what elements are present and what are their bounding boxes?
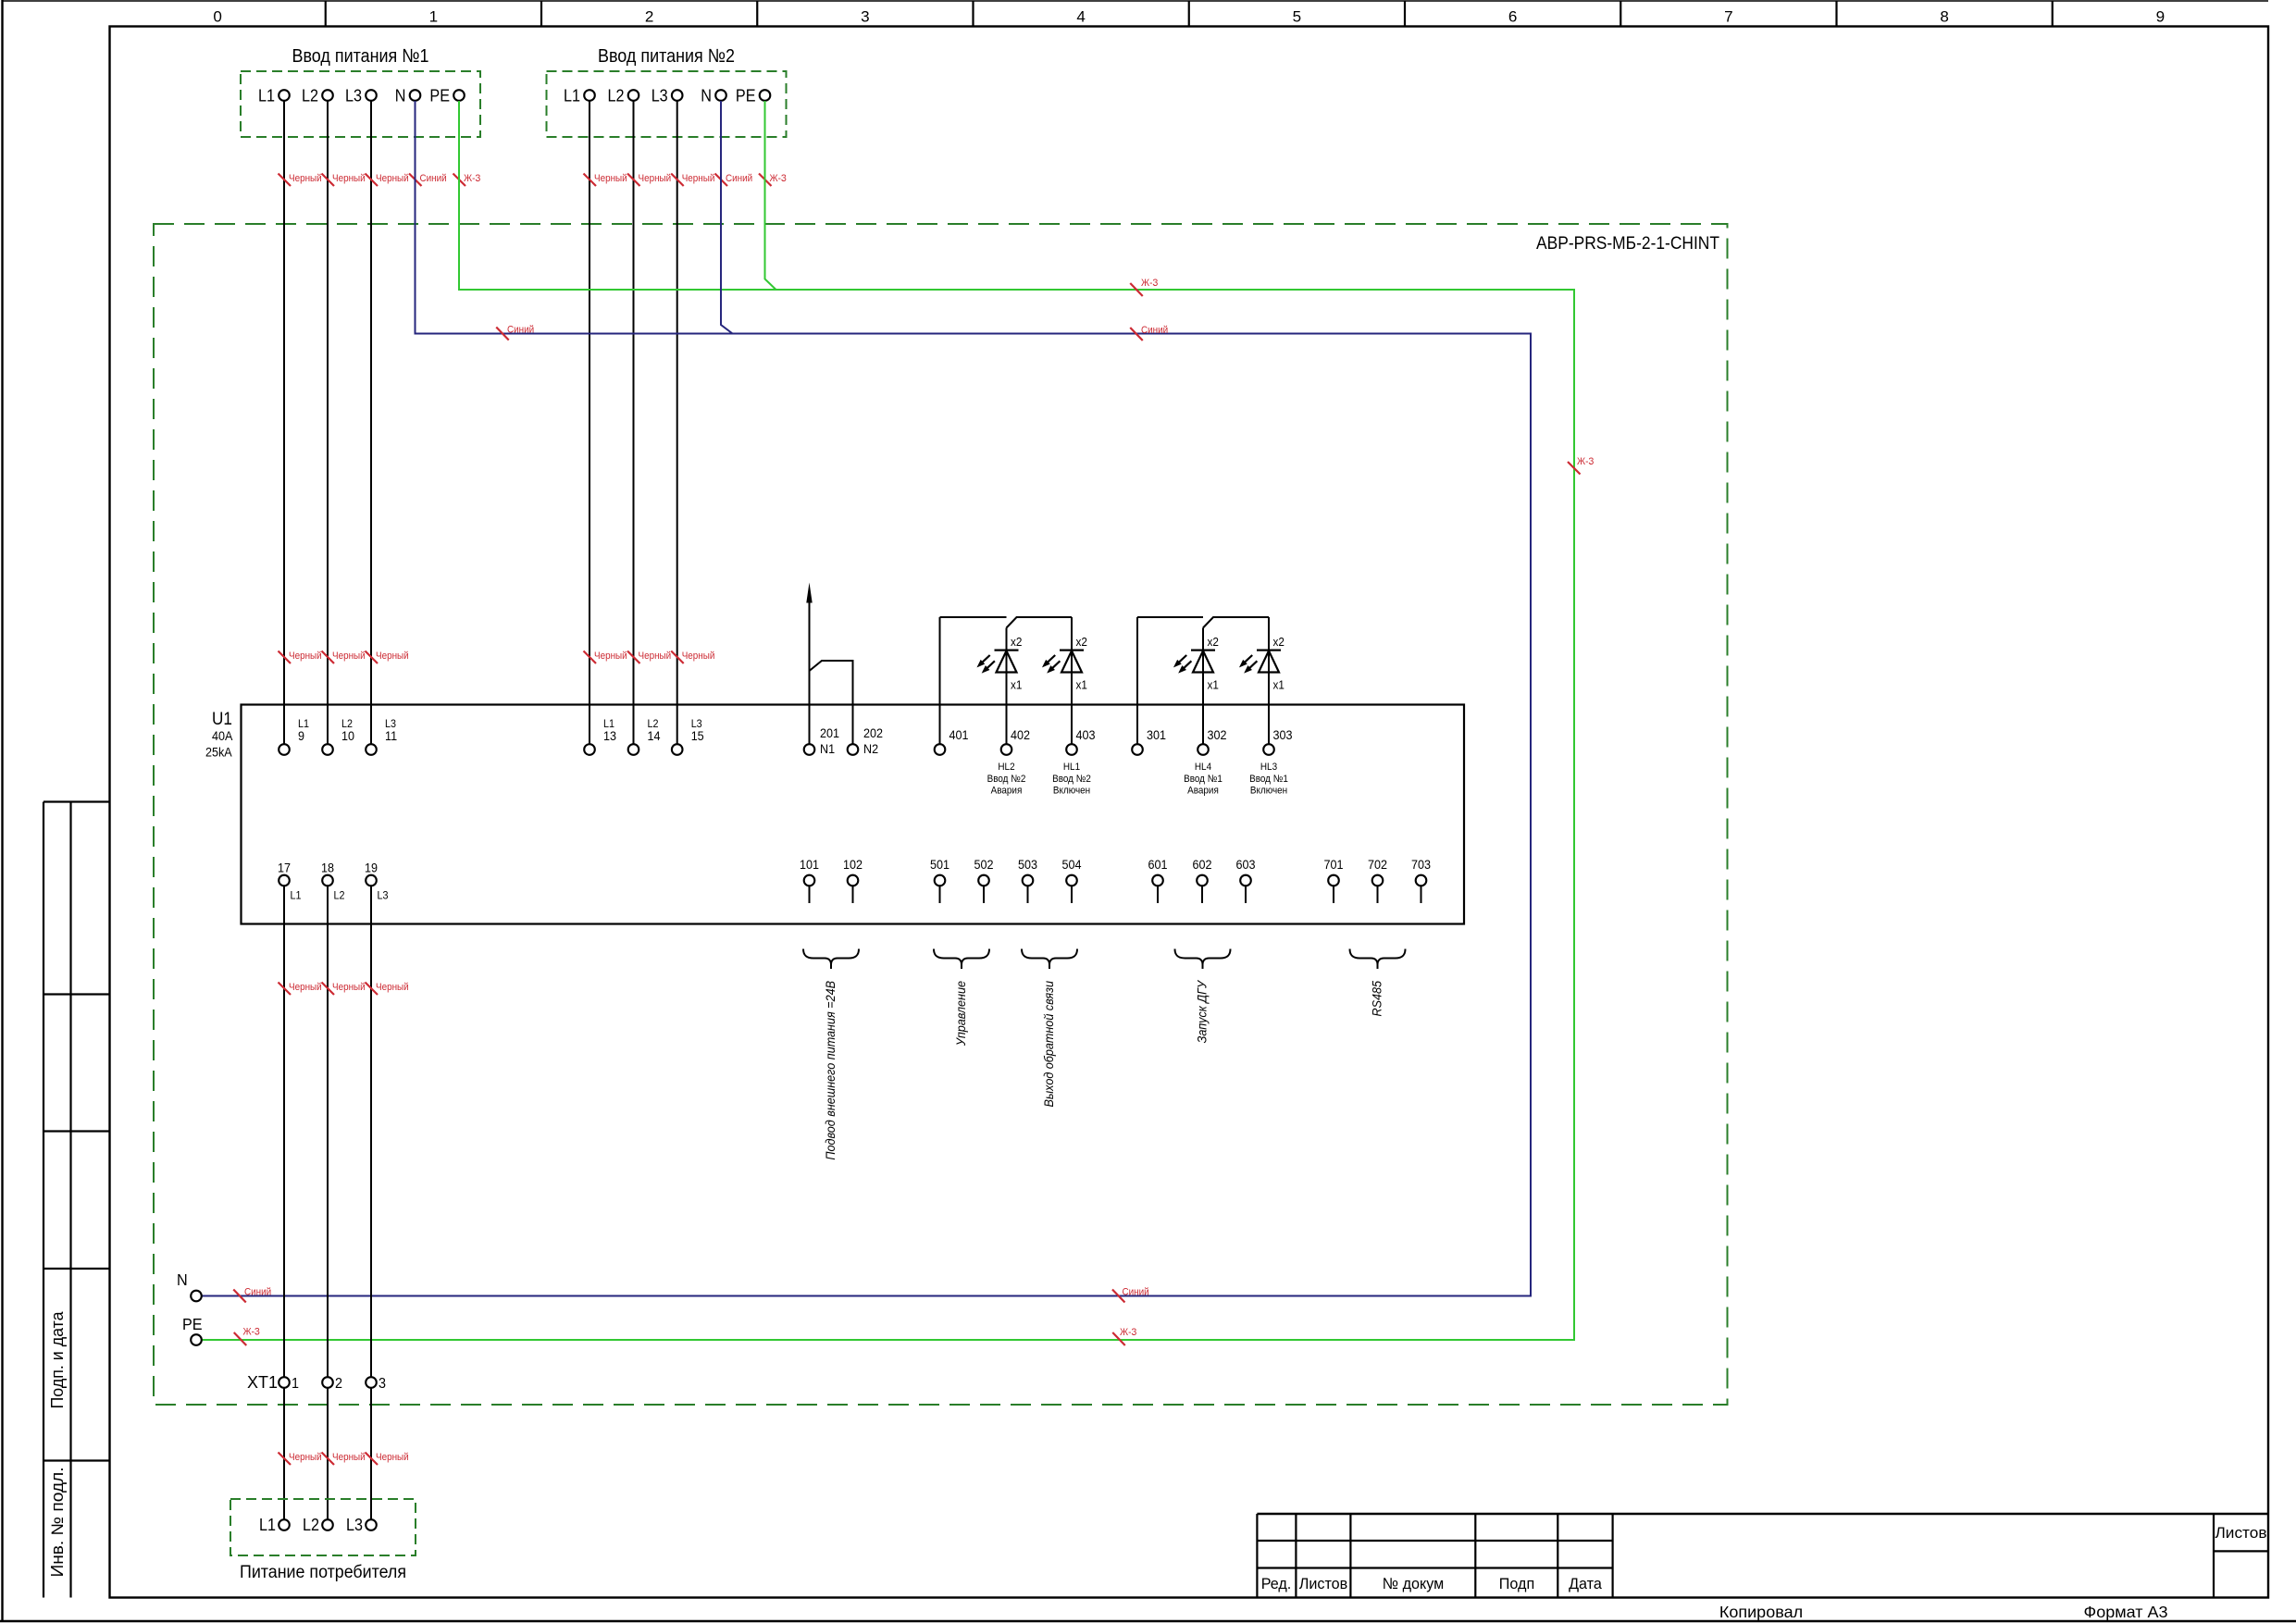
svg-text:№ докум: № докум	[1383, 1575, 1445, 1592]
svg-text:Черный: Черный	[376, 982, 409, 993]
svg-text:Черный: Черный	[289, 173, 322, 184]
svg-text:RS485: RS485	[1371, 981, 1384, 1017]
svg-text:HL2: HL2	[998, 762, 1014, 773]
svg-text:17: 17	[278, 861, 291, 875]
svg-text:L1: L1	[258, 87, 275, 105]
svg-text:Авария: Авария	[1187, 786, 1219, 797]
svg-text:1: 1	[429, 8, 439, 26]
svg-text:502: 502	[974, 857, 994, 872]
svg-text:Подп. и дата: Подп. и дата	[48, 1311, 67, 1409]
svg-text:Синий: Синий	[244, 1287, 271, 1298]
svg-text:5: 5	[1293, 8, 1302, 26]
svg-text:Синий: Синий	[1123, 1287, 1149, 1298]
svg-text:1: 1	[292, 1376, 299, 1392]
svg-text:Черный: Черный	[639, 173, 672, 184]
svg-text:Дата: Дата	[1569, 1575, 1602, 1592]
svg-text:2: 2	[335, 1376, 342, 1392]
svg-text:503: 503	[1018, 857, 1037, 872]
svg-text:Питание потребителя: Питание потребителя	[240, 1563, 406, 1582]
svg-text:7: 7	[1724, 8, 1733, 26]
svg-text:Черный: Черный	[376, 173, 409, 184]
svg-text:13: 13	[603, 728, 616, 743]
svg-text:Ввод питания №1: Ввод питания №1	[292, 45, 429, 67]
svg-text:L3: L3	[378, 889, 389, 902]
svg-text:3: 3	[379, 1376, 386, 1392]
svg-text:602: 602	[1193, 857, 1212, 872]
svg-text:Ж-З: Ж-З	[243, 1327, 261, 1338]
svg-text:N1: N1	[820, 741, 835, 756]
svg-text:702: 702	[1368, 857, 1387, 872]
svg-text:402: 402	[1011, 727, 1030, 742]
svg-text:HL3: HL3	[1260, 762, 1277, 773]
svg-text:Черный: Черный	[332, 1452, 366, 1463]
svg-text:U1: U1	[212, 710, 232, 729]
svg-text:303: 303	[1273, 727, 1293, 742]
svg-text:8: 8	[1940, 8, 1949, 26]
svg-text:Подвод внешнего питания =24В: Подвод внешнего питания =24В	[824, 981, 838, 1160]
svg-text:403: 403	[1076, 727, 1096, 742]
svg-text:x1: x1	[1208, 678, 1219, 692]
svg-text:202: 202	[863, 725, 883, 740]
svg-text:14: 14	[648, 728, 661, 743]
svg-text:L1: L1	[564, 87, 580, 105]
svg-text:Ввод питания №2: Ввод питания №2	[598, 45, 735, 67]
svg-text:N: N	[701, 87, 712, 105]
svg-text:x1: x1	[1011, 678, 1022, 692]
svg-text:L3: L3	[345, 87, 362, 105]
svg-text:PE: PE	[182, 1315, 203, 1333]
svg-text:101: 101	[800, 857, 819, 872]
svg-text:L2: L2	[302, 87, 318, 105]
svg-text:L2: L2	[334, 889, 345, 902]
svg-text:Инв. № подл.: Инв. № подл.	[48, 1468, 67, 1578]
svg-text:11: 11	[385, 728, 397, 743]
svg-text:Авария: Авария	[991, 786, 1023, 797]
svg-text:Черный: Черный	[376, 1452, 409, 1463]
svg-text:Ж-З: Ж-З	[464, 173, 481, 184]
svg-text:6: 6	[1508, 8, 1518, 26]
svg-text:0: 0	[213, 8, 222, 26]
svg-text:Листов: Листов	[2215, 1524, 2267, 1542]
svg-text:Черный: Черный	[289, 1452, 322, 1463]
svg-text:HL1: HL1	[1063, 762, 1080, 773]
svg-text:Копировал: Копировал	[1719, 1603, 1803, 1621]
svg-text:Синий: Синий	[420, 173, 447, 184]
svg-text:N: N	[395, 87, 406, 105]
svg-text:PE: PE	[736, 87, 756, 105]
svg-text:301: 301	[1147, 727, 1166, 742]
svg-text:2: 2	[645, 8, 654, 26]
svg-text:15: 15	[691, 728, 704, 743]
svg-text:Черный: Черный	[332, 982, 366, 993]
svg-text:Ред.: Ред.	[1261, 1575, 1292, 1592]
svg-text:Черный: Черный	[376, 650, 409, 662]
svg-text:Листов: Листов	[1299, 1575, 1348, 1592]
svg-text:XT1: XT1	[247, 1372, 278, 1392]
svg-text:25kA: 25kA	[205, 745, 232, 760]
svg-text:L3: L3	[652, 87, 668, 105]
svg-text:x2: x2	[1273, 635, 1285, 649]
svg-text:L2: L2	[303, 1516, 319, 1534]
svg-text:x2: x2	[1011, 635, 1022, 649]
svg-text:Ж-З: Ж-З	[1120, 1327, 1137, 1338]
svg-text:18: 18	[321, 861, 334, 875]
svg-text:Синий: Синий	[726, 173, 752, 184]
svg-text:АВР-PRS-МБ-2-1-CHINT: АВР-PRS-МБ-2-1-CHINT	[1536, 234, 1719, 254]
svg-text:701: 701	[1324, 857, 1344, 872]
svg-text:PE: PE	[429, 87, 450, 105]
svg-text:Формат А3: Формат А3	[2084, 1603, 2168, 1621]
svg-text:501: 501	[930, 857, 949, 872]
svg-text:601: 601	[1148, 857, 1168, 872]
svg-text:Запуск ДГУ: Запуск ДГУ	[1196, 980, 1210, 1044]
svg-text:x1: x1	[1273, 678, 1285, 692]
svg-text:Черный: Черный	[594, 173, 627, 184]
svg-text:603: 603	[1236, 857, 1256, 872]
svg-text:L1: L1	[259, 1516, 276, 1534]
svg-text:4: 4	[1076, 8, 1086, 26]
svg-text:Управление: Управление	[954, 981, 968, 1047]
svg-text:L3: L3	[346, 1516, 363, 1534]
svg-text:x2: x2	[1076, 635, 1087, 649]
svg-text:L2: L2	[608, 87, 625, 105]
svg-text:Черный: Черный	[682, 650, 715, 662]
svg-text:401: 401	[949, 727, 969, 742]
svg-text:L1: L1	[291, 889, 302, 902]
svg-text:504: 504	[1062, 857, 1082, 872]
svg-text:Подп: Подп	[1499, 1575, 1534, 1592]
svg-text:Черный: Черный	[639, 650, 672, 662]
svg-text:x1: x1	[1076, 678, 1087, 692]
svg-text:Ввод №2: Ввод №2	[1052, 774, 1091, 785]
svg-text:N2: N2	[863, 741, 878, 756]
svg-text:HL4: HL4	[1195, 762, 1211, 773]
svg-text:Выход обратной связи: Выход обратной связи	[1042, 981, 1056, 1108]
svg-text:Ввод №2: Ввод №2	[987, 774, 1026, 785]
svg-text:10: 10	[341, 728, 354, 743]
svg-text:Ввод №1: Ввод №1	[1184, 774, 1222, 785]
svg-text:302: 302	[1208, 727, 1227, 742]
svg-text:703: 703	[1411, 857, 1431, 872]
svg-text:Ж-З: Ж-З	[770, 173, 788, 184]
svg-text:Включен: Включен	[1250, 786, 1287, 797]
svg-text:9: 9	[2156, 8, 2166, 26]
svg-text:Ж-З: Ж-З	[1141, 278, 1159, 289]
svg-text:Черный: Черный	[332, 650, 366, 662]
svg-text:Включен: Включен	[1053, 786, 1090, 797]
svg-text:102: 102	[843, 857, 863, 872]
svg-text:Черный: Черный	[289, 650, 322, 662]
svg-text:Черный: Черный	[682, 173, 715, 184]
svg-text:Черный: Черный	[332, 173, 366, 184]
svg-text:Синий: Синий	[1141, 325, 1168, 336]
svg-text:3: 3	[861, 8, 870, 26]
svg-text:40A: 40A	[212, 728, 233, 743]
svg-text:Черный: Черный	[594, 650, 627, 662]
svg-text:x2: x2	[1208, 635, 1219, 649]
svg-text:Черный: Черный	[289, 982, 322, 993]
svg-text:Ж-З: Ж-З	[1577, 456, 1595, 467]
svg-text:201: 201	[820, 725, 839, 740]
svg-text:9: 9	[298, 728, 304, 743]
svg-text:N: N	[177, 1270, 188, 1289]
svg-text:Синий: Синий	[507, 325, 534, 336]
svg-text:19: 19	[365, 861, 378, 875]
svg-text:Ввод №1: Ввод №1	[1249, 774, 1288, 785]
